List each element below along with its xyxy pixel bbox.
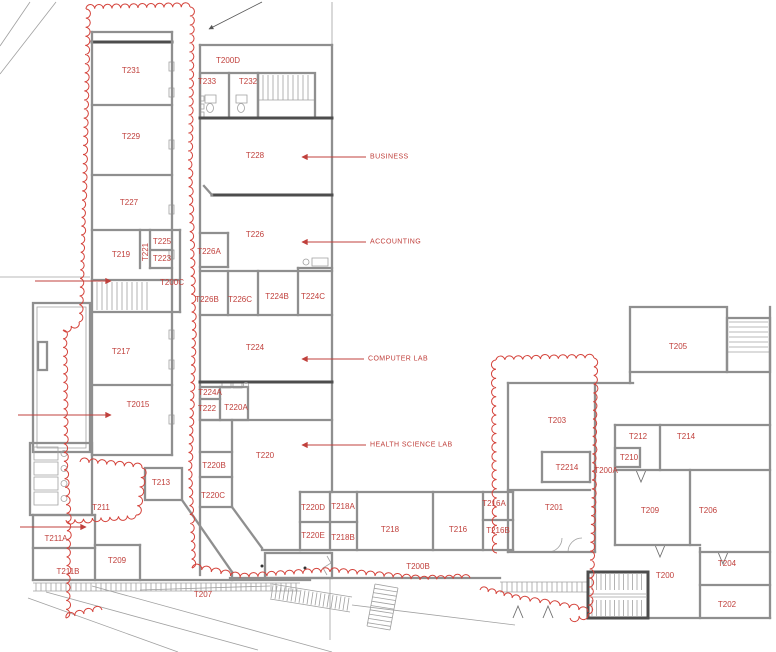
room-label-T220D: T220D [301,504,325,512]
room-label-T200C: T200C [160,279,184,287]
room-label-T232: T232 [239,78,257,86]
room-label-T216B: T216B [486,527,510,535]
room-label-T207: T207 [194,591,212,599]
room-label-T223: T223 [153,255,171,263]
room-label-T231: T231 [122,67,140,75]
room-label-T233: T233 [198,78,216,86]
room-label-T226B: T226B [195,296,219,304]
room-label-T218B: T218B [331,534,355,542]
room-label-T202: T202 [718,601,736,609]
room-label-T2015: T2015 [127,401,150,409]
room-label-T226A: T226A [197,248,221,256]
room-label-T224B: T224B [265,293,289,301]
room-label-T209: T209 [641,507,659,515]
room-label-T222: T222 [198,405,216,413]
room-label-T205: T205 [669,343,687,351]
room-label-T226: T226 [246,231,264,239]
room-label-T227: T227 [120,199,138,207]
room-label-T226C: T226C [228,296,252,304]
room-label-T216: T216 [449,526,467,534]
room-label-T229: T229 [122,133,140,141]
room-label-T228: T228 [246,152,264,160]
room-label-T213: T213 [152,479,170,487]
room-label-T200: T200 [656,572,674,580]
room-label-T200D: T200D [216,57,240,65]
room-labels-layer: T231T229T227T219T225T223T221T200CT217T20… [0,0,776,652]
room-label-T209: T209 [108,557,126,565]
room-label-T211A: T211A [45,535,68,543]
room-label-T204: T204 [718,560,736,568]
room-label-T220B: T220B [202,462,226,470]
room-label-T201: T201 [545,504,563,512]
room-label-T211B: T211B [57,568,80,576]
room-label-T218A: T218A [331,503,355,511]
room-label-T217: T217 [112,348,130,356]
room-label-T224A: T224A [198,389,222,397]
room-label-T200B: T200B [406,563,430,571]
room-label-T214: T214 [677,433,695,441]
floor-plan-canvas: T231T229T227T219T225T223T221T200CT217T20… [0,0,776,652]
room-label-T200A: T200A [594,467,618,475]
room-label-T221: T221 [142,243,150,261]
room-label-T225: T225 [153,238,171,246]
room-label-T211: T211 [92,504,110,512]
room-label-T216A: T216A [482,500,506,508]
room-label-T224C: T224C [301,293,325,301]
annotation-label: COMPUTER LAB [368,356,428,363]
annotation-label: ACCOUNTING [370,239,421,246]
room-label-T219: T219 [112,251,130,259]
room-label-T220C: T220C [201,492,225,500]
annotation-label: BUSINESS [370,154,409,161]
room-label-T224: T224 [246,344,264,352]
room-label-T218: T218 [381,526,399,534]
room-label-T2214: T2214 [556,464,579,472]
annotation-label: HEALTH SCIENCE LAB [370,442,453,449]
room-label-T220E: T220E [301,532,325,540]
room-label-T220A: T220A [224,404,248,412]
room-label-T210: T210 [620,454,638,462]
room-label-T220: T220 [256,452,274,460]
room-label-T206: T206 [699,507,717,515]
room-label-T203: T203 [548,417,566,425]
room-label-T212: T212 [629,433,647,441]
